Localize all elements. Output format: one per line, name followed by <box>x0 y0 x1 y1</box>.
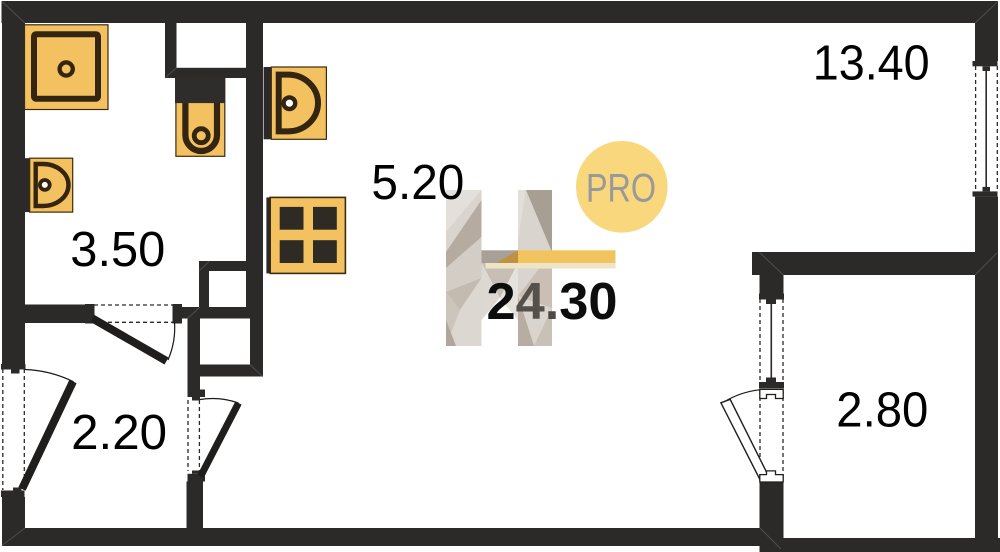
svg-text:13.40: 13.40 <box>813 37 930 91</box>
svg-text:PRO: PRO <box>586 167 656 211</box>
svg-text:2.80: 2.80 <box>836 384 928 438</box>
svg-text:3.50: 3.50 <box>70 223 165 277</box>
svg-text:2.20: 2.20 <box>71 406 167 460</box>
svg-text:24.30: 24.30 <box>487 273 618 331</box>
svg-text:5.20: 5.20 <box>371 156 464 210</box>
